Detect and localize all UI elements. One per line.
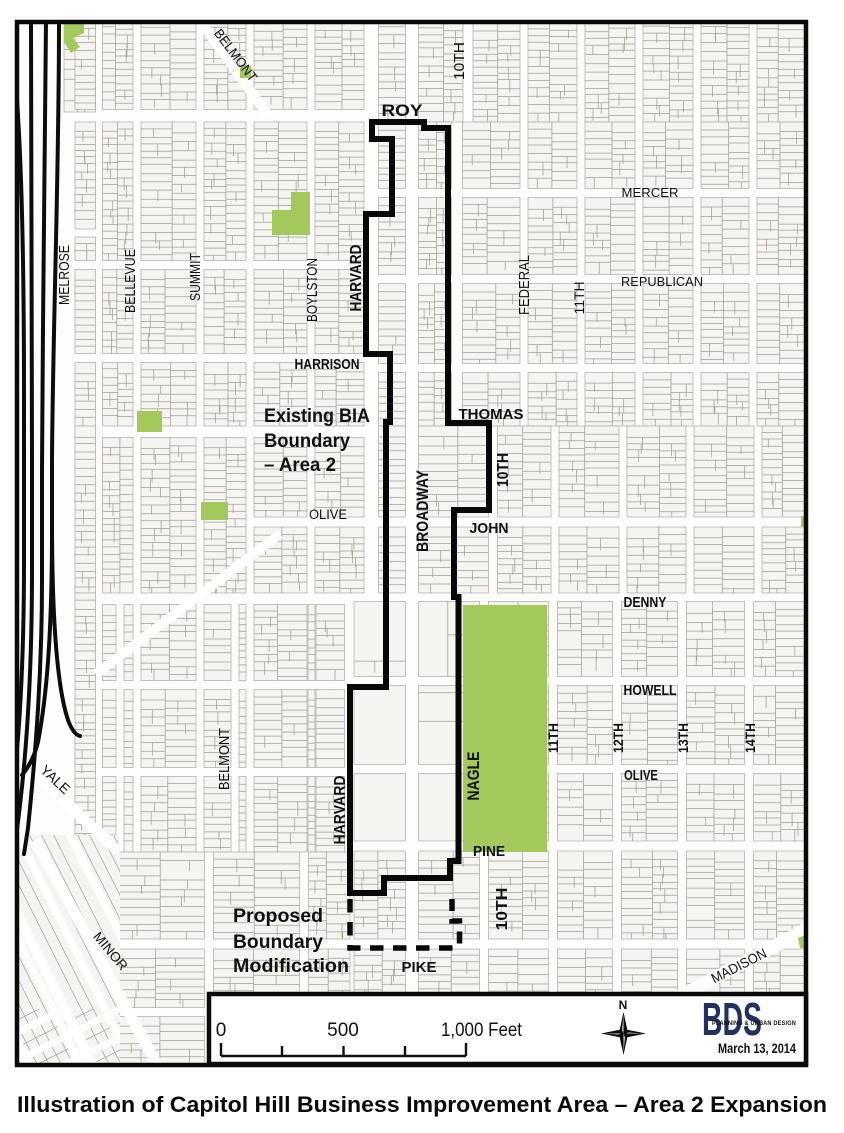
svg-text:BELMONT: BELMONT: [217, 728, 233, 790]
svg-text:500: 500: [327, 1020, 359, 1041]
svg-text:Existing BIA: Existing BIA: [264, 405, 370, 427]
svg-text:PLANNING & URBAN DESIGN: PLANNING & URBAN DESIGN: [712, 1020, 796, 1027]
svg-text:MERCER: MERCER: [622, 185, 679, 200]
svg-text:HARVARD: HARVARD: [348, 245, 365, 312]
svg-text:10TH: 10TH: [494, 888, 511, 931]
svg-text:Modification: Modification: [233, 956, 349, 977]
svg-text:11TH: 11TH: [545, 723, 561, 753]
svg-text:NAGLE: NAGLE: [465, 752, 483, 801]
svg-text:BOYLSTON: BOYLSTON: [305, 258, 321, 322]
svg-text:MELROSE: MELROSE: [57, 245, 73, 305]
svg-text:Proposed: Proposed: [233, 906, 323, 927]
svg-text:– Area 2: – Area 2: [264, 454, 336, 476]
svg-text:HOWELL: HOWELL: [624, 682, 677, 699]
svg-text:SUMMIT: SUMMIT: [188, 253, 204, 301]
svg-text:BDS: BDS: [702, 993, 762, 1045]
svg-text:12TH: 12TH: [610, 723, 626, 753]
svg-text:ROY: ROY: [382, 101, 424, 120]
svg-text:March 13, 2014: March 13, 2014: [718, 1041, 796, 1056]
svg-text:PINE: PINE: [473, 843, 505, 860]
svg-text:Boundary: Boundary: [264, 430, 350, 452]
svg-text:REPUBLICAN: REPUBLICAN: [621, 274, 703, 289]
svg-text:13TH: 13TH: [675, 723, 691, 753]
svg-text:DENNY: DENNY: [624, 594, 667, 611]
svg-text:BELLEVUE: BELLEVUE: [123, 249, 139, 313]
svg-text:10TH: 10TH: [495, 453, 512, 487]
svg-text:1,000 Feet: 1,000 Feet: [441, 1020, 523, 1041]
svg-text:PIKE: PIKE: [402, 959, 437, 976]
svg-text:Boundary: Boundary: [233, 932, 323, 953]
svg-text:10TH: 10TH: [452, 42, 468, 80]
svg-text:N: N: [619, 998, 628, 1012]
svg-text:0: 0: [216, 1020, 227, 1041]
svg-text:BROADWAY: BROADWAY: [413, 469, 432, 552]
svg-text:FEDERAL: FEDERAL: [517, 255, 533, 315]
svg-text:HARVARD: HARVARD: [332, 776, 349, 845]
svg-text:Illustration of Capitol Hill B: Illustration of Capitol Hill Business Im…: [17, 1092, 827, 1117]
svg-text:OLIVE: OLIVE: [624, 767, 658, 784]
svg-text:HARRISON: HARRISON: [295, 356, 360, 373]
svg-text:THOMAS: THOMAS: [459, 406, 524, 423]
svg-text:JOHN: JOHN: [470, 520, 509, 537]
svg-text:11TH: 11TH: [571, 282, 587, 315]
svg-text:OLIVE: OLIVE: [309, 506, 347, 522]
svg-text:14TH: 14TH: [742, 723, 758, 753]
